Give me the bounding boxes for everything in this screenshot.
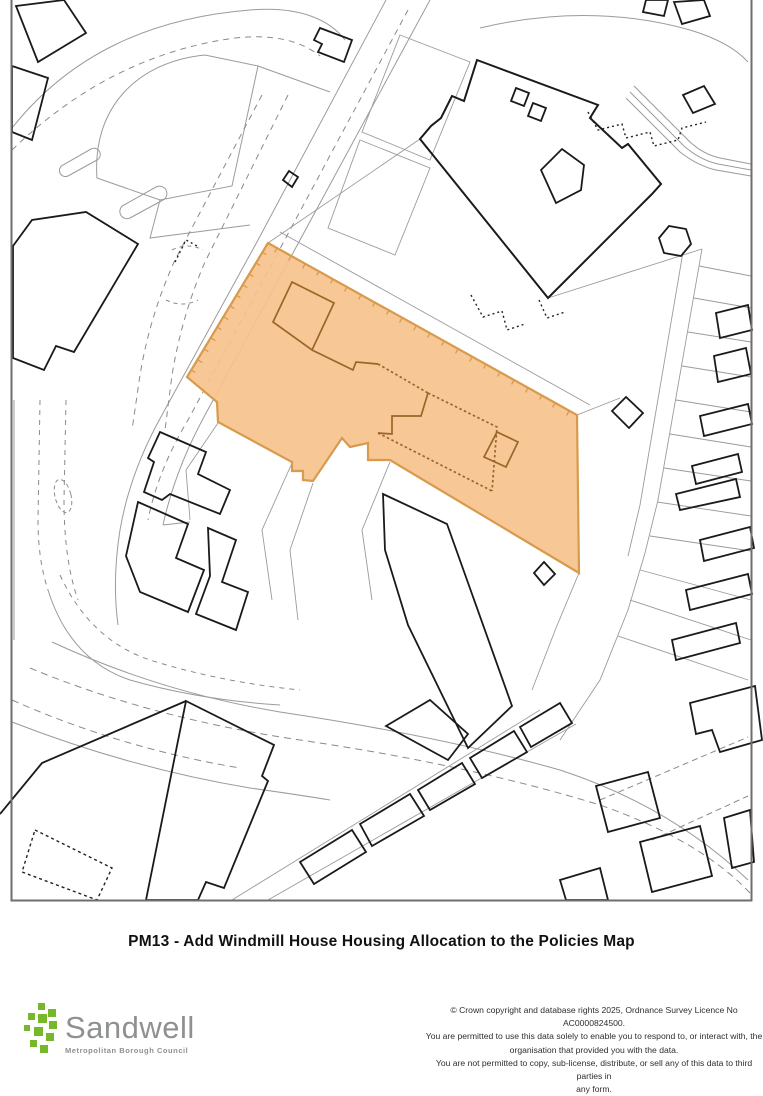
logo-subtitle: Metropolitan Borough Council xyxy=(65,1046,195,1055)
footer: Sandwell Metropolitan Borough Council © … xyxy=(0,995,763,1080)
sandwell-logo: Sandwell Metropolitan Borough Council xyxy=(24,1003,195,1061)
allocation-layer xyxy=(187,243,579,573)
page-title: PM13 - Add Windmill House Housing Alloca… xyxy=(0,933,763,951)
copyright-line: You are not permitted to copy, sub-licen… xyxy=(425,1057,763,1083)
copyright-line: You are permitted to use this data solel… xyxy=(425,1030,763,1043)
copyright-notice: © Crown copyright and database rights 20… xyxy=(425,1004,763,1096)
map xyxy=(0,0,763,910)
copyright-line: © Crown copyright and database rights 20… xyxy=(425,1004,763,1030)
page: { "title": { "text": "PM13 - Add Windmil… xyxy=(0,0,763,1080)
copyright-line: any form. xyxy=(425,1083,763,1096)
logo-name: Sandwell xyxy=(65,1013,195,1043)
allocation-polygon-pm13 xyxy=(187,243,579,573)
sandwell-logo-text: Sandwell Metropolitan Borough Council xyxy=(65,1003,195,1055)
sandwell-logo-icon xyxy=(24,1003,58,1061)
policies-map-svg xyxy=(0,0,763,910)
copyright-line: organisation that provided you with the … xyxy=(425,1044,763,1057)
